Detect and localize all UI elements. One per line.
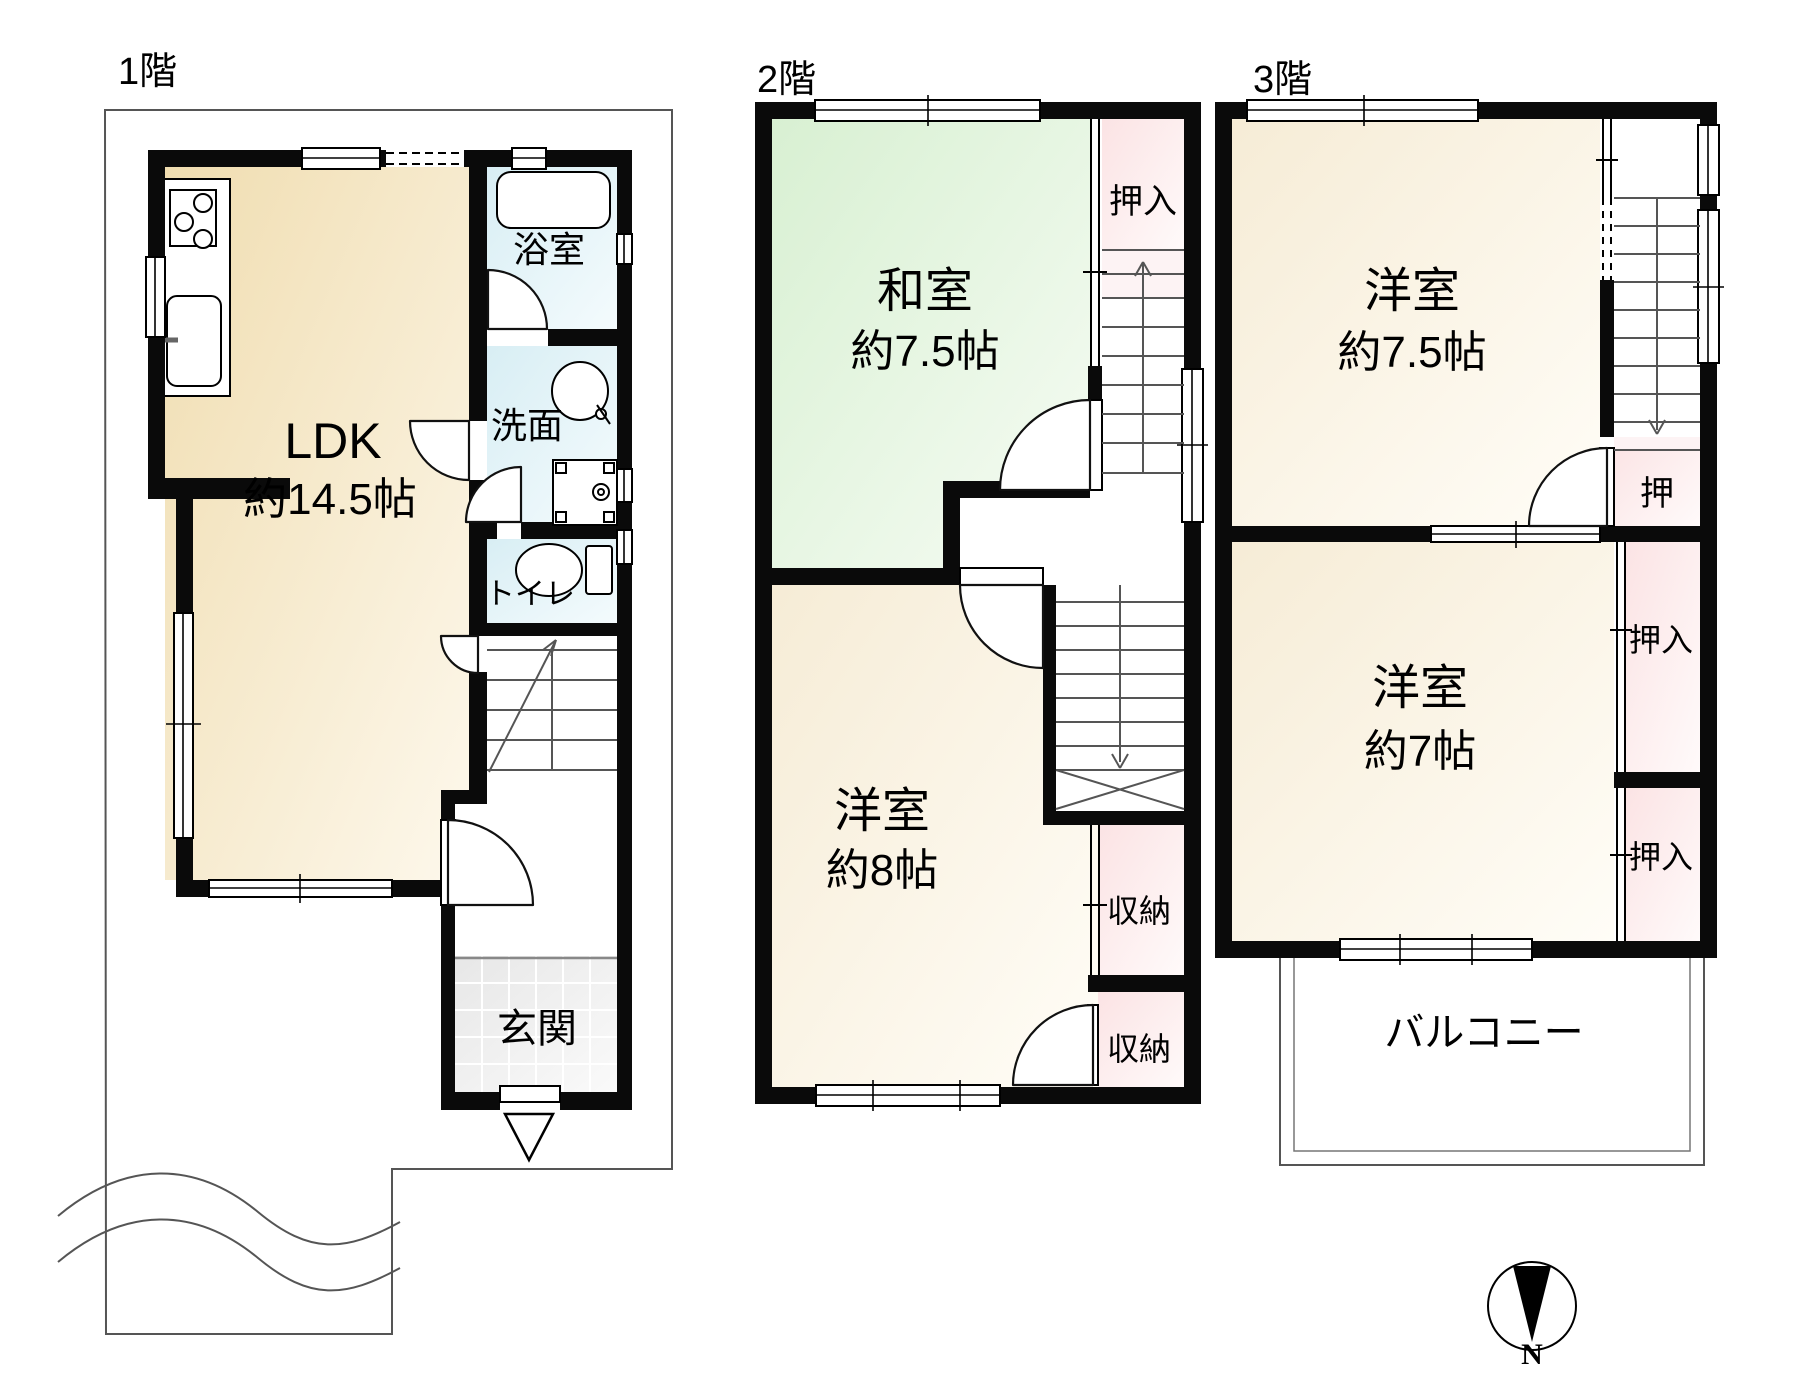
window <box>815 95 1040 126</box>
closet-oshi-strip <box>1614 437 1700 450</box>
window <box>1340 934 1532 965</box>
floor-3: 3階 <box>1215 59 1724 1165</box>
break-line-icon <box>58 1173 400 1244</box>
label-ldk-size: 約14.5帖 <box>243 475 417 524</box>
window <box>617 530 632 564</box>
entrance-sill <box>500 1086 560 1102</box>
label-yoshitsu8-size: 約8帖 <box>826 846 938 895</box>
floor-1: 1階 <box>58 51 672 1334</box>
floor3-title: 3階 <box>1253 59 1312 101</box>
window <box>1693 210 1724 363</box>
floor2-title: 2階 <box>757 59 816 101</box>
floor-2: 2階 <box>755 59 1208 1111</box>
label-washitsu: 和室 <box>877 265 973 318</box>
label-oshiire-lower: 押入 <box>1629 839 1693 875</box>
label-yoshitsu75: 洋室 <box>1364 265 1460 318</box>
window <box>816 1080 1000 1111</box>
label-ldk: LDK <box>284 413 381 469</box>
room-yoshitsu75 <box>1232 119 1600 526</box>
break-line-icon <box>58 1219 400 1290</box>
label-balcony: バルコニー <box>1384 1011 1583 1055</box>
window-dashed <box>386 150 464 167</box>
window <box>302 148 380 169</box>
label-storage-lower: 収納 <box>1107 1031 1171 1067</box>
window <box>1698 125 1719 195</box>
label-toilet: トイレ <box>485 578 575 611</box>
compass-icon: N <box>1488 1262 1576 1371</box>
balcony <box>1280 958 1704 1165</box>
window <box>1247 95 1478 126</box>
stair-rail-dashed <box>1603 198 1611 280</box>
window <box>146 257 165 337</box>
window <box>512 148 546 169</box>
label-oshiire: 押入 <box>1109 183 1177 221</box>
label-yoshitsu7: 洋室 <box>1372 662 1468 715</box>
label-bath: 浴室 <box>513 229 585 270</box>
label-yoshitsu75-size: 約7.5帖 <box>1337 328 1486 377</box>
bathtub-icon <box>497 172 610 228</box>
floor1-title: 1階 <box>118 51 177 93</box>
door-leaf <box>960 568 1043 585</box>
washer-pan-icon <box>553 460 617 525</box>
entrance-arrow-icon <box>505 1114 553 1160</box>
label-yoshitsu8: 洋室 <box>834 785 930 838</box>
label-yoshitsu7-size: 約7帖 <box>1364 727 1476 776</box>
label-washroom: 洗面 <box>491 405 563 446</box>
label-oshi: 押 <box>1640 475 1674 513</box>
label-entrance: 玄関 <box>497 1007 577 1051</box>
window <box>617 469 632 502</box>
label-washitsu-size: 約7.5帖 <box>850 327 999 376</box>
door-swing <box>466 467 521 522</box>
label-oshiire-upper: 押入 <box>1629 622 1693 658</box>
window <box>1177 369 1208 522</box>
label-storage-upper: 収納 <box>1107 893 1171 929</box>
compass-north-label: N <box>1521 1338 1543 1371</box>
window <box>617 234 632 264</box>
floorplan-canvas: 1階 <box>0 0 1800 1398</box>
stair-landing <box>1614 119 1700 198</box>
floorplan-page: 1階 <box>0 0 1800 1398</box>
